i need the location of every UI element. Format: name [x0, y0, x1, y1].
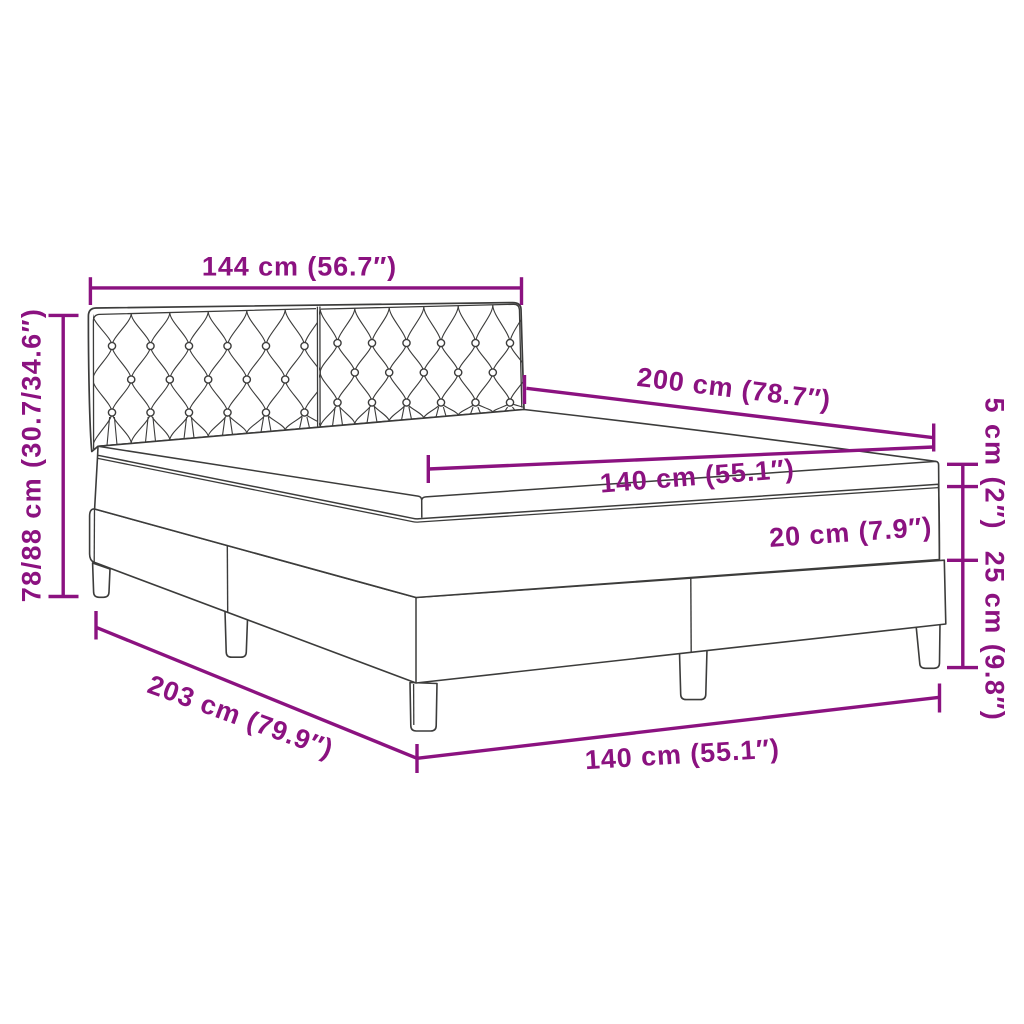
- svg-text:144 cm (56.7″): 144 cm (56.7″): [202, 251, 397, 281]
- svg-text:5 cm (2″): 5 cm (2″): [980, 398, 1010, 531]
- svg-text:25 cm (9.8″): 25 cm (9.8″): [980, 551, 1010, 722]
- svg-text:78/88 cm (30.7/34.6″): 78/88 cm (30.7/34.6″): [17, 308, 47, 603]
